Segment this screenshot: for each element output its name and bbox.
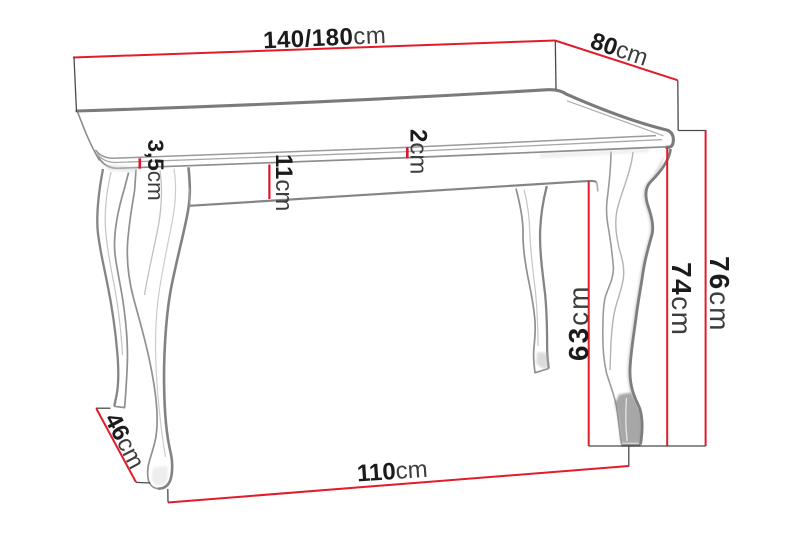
svg-text:11cm: 11cm bbox=[270, 154, 297, 211]
svg-text:80cm: 80cm bbox=[587, 28, 651, 72]
svg-text:74cm: 74cm bbox=[666, 262, 697, 336]
svg-text:110cm: 110cm bbox=[356, 456, 428, 488]
svg-text:46cm: 46cm bbox=[99, 409, 150, 474]
svg-text:2cm: 2cm bbox=[405, 129, 432, 174]
svg-text:3,5cm: 3,5cm bbox=[143, 140, 168, 201]
svg-text:76cm: 76cm bbox=[704, 256, 735, 332]
svg-text:140/180cm: 140/180cm bbox=[263, 22, 387, 55]
svg-text:63cm: 63cm bbox=[563, 285, 594, 361]
